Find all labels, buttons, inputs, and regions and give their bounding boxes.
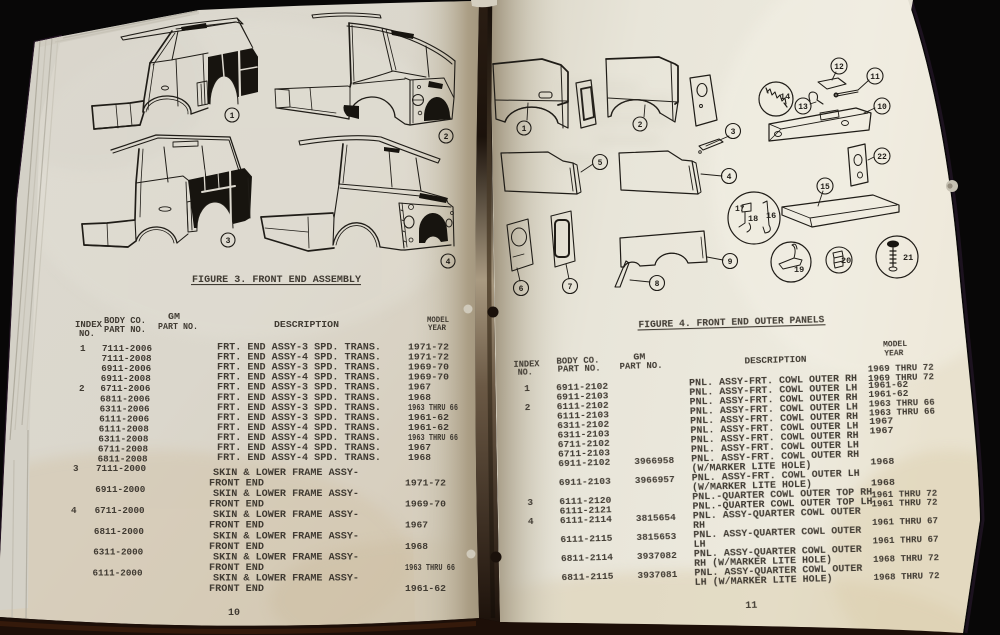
svg-text:6111-2000: 6111-2000: [93, 567, 143, 578]
svg-text:PART NO.: PART NO.: [158, 322, 198, 332]
svg-text:10: 10: [877, 103, 887, 112]
svg-text:1967: 1967: [405, 520, 428, 531]
svg-text:6911-2103: 6911-2103: [559, 476, 612, 488]
svg-text:1967: 1967: [869, 425, 894, 437]
svg-text:NO.: NO.: [518, 367, 533, 377]
svg-text:21: 21: [903, 253, 913, 263]
svg-text:1971-72: 1971-72: [405, 478, 446, 489]
svg-text:1968: 1968: [408, 452, 431, 463]
svg-text:6111-2114: 6111-2114: [560, 514, 613, 526]
svg-text:12: 12: [834, 63, 844, 72]
svg-text:PART NO.: PART NO.: [619, 361, 662, 372]
svg-text:6711-2000: 6711-2000: [95, 505, 145, 516]
svg-text:11: 11: [870, 73, 880, 82]
svg-text:1968: 1968: [870, 456, 895, 468]
svg-text:20: 20: [841, 256, 851, 266]
svg-text:16: 16: [766, 211, 776, 221]
svg-text:17: 17: [735, 205, 745, 214]
svg-text:SKIN & LOWER FRAME ASSY-: SKIN & LOWER FRAME ASSY-: [213, 531, 359, 542]
svg-text:3: 3: [731, 128, 736, 137]
svg-text:1961-62: 1961-62: [405, 583, 446, 594]
svg-text:YEAR: YEAR: [428, 323, 447, 333]
svg-text:DESCRIPTION: DESCRIPTION: [744, 354, 807, 367]
svg-text:4: 4: [71, 505, 77, 516]
svg-text:3: 3: [226, 237, 231, 246]
svg-text:SKIN & LOWER FRAME ASSY-: SKIN & LOWER FRAME ASSY-: [213, 489, 359, 500]
svg-text:SKIN & LOWER FRAME ASSY-: SKIN & LOWER FRAME ASSY-: [213, 468, 359, 479]
svg-text:10: 10: [228, 607, 240, 619]
svg-text:3815653: 3815653: [636, 531, 677, 543]
svg-text:FIGURE 3. FRONT END ASSEMBLY: FIGURE 3. FRONT END ASSEMBLY: [192, 274, 361, 285]
svg-text:FRONT END: FRONT END: [209, 542, 264, 553]
svg-text:1: 1: [230, 112, 235, 121]
svg-text:2: 2: [79, 383, 85, 394]
svg-text:18: 18: [748, 214, 758, 224]
svg-text:15: 15: [820, 183, 830, 192]
svg-text:PART NO.: PART NO.: [558, 363, 601, 374]
svg-text:6: 6: [519, 285, 524, 294]
svg-text:19: 19: [794, 265, 804, 275]
svg-text:FRONT END: FRONT END: [209, 479, 264, 490]
svg-text:GM: GM: [168, 312, 180, 322]
svg-text:9: 9: [728, 258, 733, 267]
svg-text:1961 THRU 67: 1961 THRU 67: [872, 534, 939, 547]
svg-text:FRONT END: FRONT END: [209, 521, 264, 532]
svg-text:2: 2: [525, 402, 531, 413]
svg-text:SKIN & LOWER FRAME ASSY-: SKIN & LOWER FRAME ASSY-: [213, 574, 359, 585]
svg-text:6811-2114: 6811-2114: [561, 552, 614, 564]
svg-text:6811-2000: 6811-2000: [94, 526, 144, 537]
svg-text:22: 22: [877, 153, 887, 162]
svg-text:2: 2: [638, 121, 643, 130]
svg-text:1968 THRU 72: 1968 THRU 72: [873, 552, 940, 565]
svg-text:3815654: 3815654: [636, 512, 677, 524]
svg-text:4: 4: [727, 173, 732, 182]
svg-text:FRONT END: FRONT END: [209, 563, 264, 574]
svg-text:SKIN & LOWER FRAME ASSY-: SKIN & LOWER FRAME ASSY-: [213, 510, 359, 521]
svg-text:3966958: 3966958: [634, 455, 675, 467]
svg-text:3966957: 3966957: [635, 474, 676, 486]
svg-text:1: 1: [522, 125, 527, 134]
svg-text:4: 4: [446, 258, 451, 267]
svg-text:FRT. END ASSY-4 SPD. TRANS.: FRT. END ASSY-4 SPD. TRANS.: [217, 453, 381, 464]
svg-text:11: 11: [745, 600, 757, 612]
svg-text:1968: 1968: [871, 477, 896, 489]
svg-text:3937082: 3937082: [637, 550, 678, 562]
svg-text:1: 1: [80, 343, 86, 354]
svg-text:FRONT END: FRONT END: [209, 500, 264, 511]
svg-text:1961 THRU 72: 1961 THRU 72: [871, 497, 938, 510]
svg-text:NO.: NO.: [79, 329, 95, 339]
svg-text:14: 14: [780, 92, 790, 102]
svg-text:4: 4: [528, 516, 534, 527]
svg-text:1968 THRU 72: 1968 THRU 72: [873, 570, 940, 583]
svg-text:YEAR: YEAR: [884, 348, 904, 359]
svg-text:7: 7: [568, 283, 573, 292]
svg-text:1963 THRU 66: 1963 THRU 66: [405, 562, 455, 573]
svg-text:8: 8: [655, 280, 660, 289]
svg-text:1968: 1968: [405, 541, 428, 552]
svg-text:DESCRIPTION: DESCRIPTION: [274, 319, 339, 330]
svg-text:SKIN & LOWER FRAME ASSY-: SKIN & LOWER FRAME ASSY-: [213, 552, 359, 563]
svg-text:6811-2115: 6811-2115: [561, 571, 614, 583]
svg-text:6911-2102: 6911-2102: [558, 457, 611, 469]
svg-text:1: 1: [524, 383, 530, 394]
svg-text:PART NO.: PART NO.: [104, 325, 146, 335]
svg-text:1969-70: 1969-70: [405, 499, 446, 510]
svg-text:13: 13: [798, 103, 808, 112]
svg-text:6311-2000: 6311-2000: [93, 547, 143, 558]
svg-text:2: 2: [444, 133, 449, 142]
svg-text:3: 3: [73, 463, 79, 474]
svg-text:6911-2000: 6911-2000: [95, 484, 145, 495]
svg-text:6111-2115: 6111-2115: [560, 533, 613, 545]
svg-text:3: 3: [527, 497, 533, 508]
svg-text:7111-2000: 7111-2000: [96, 463, 146, 474]
svg-text:1961 THRU 67: 1961 THRU 67: [872, 515, 939, 528]
svg-text:FRONT END: FRONT END: [209, 584, 264, 595]
svg-text:3937081: 3937081: [637, 569, 678, 581]
